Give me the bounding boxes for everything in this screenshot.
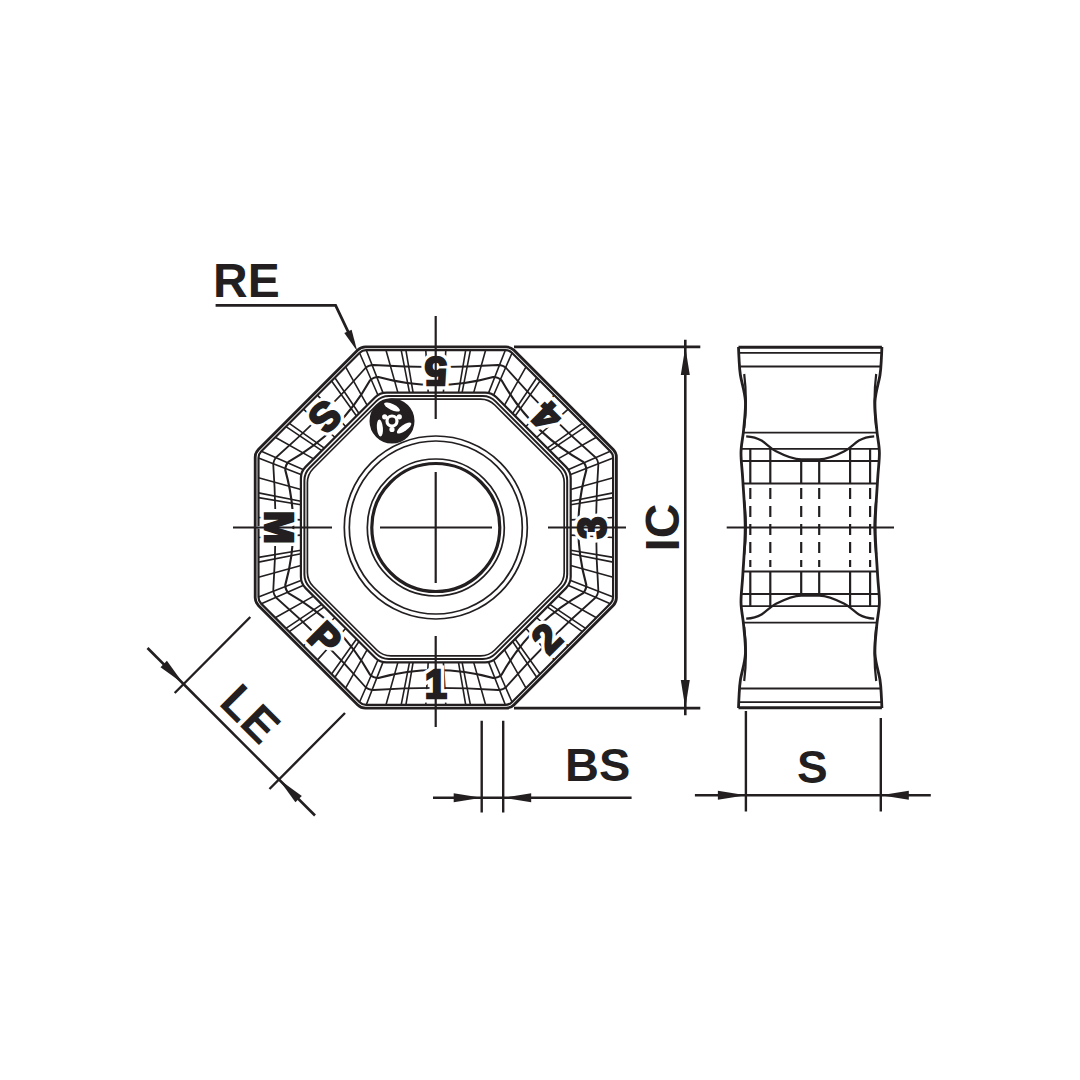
- svg-text:S: S: [797, 741, 828, 793]
- svg-text:RE: RE: [213, 254, 280, 307]
- svg-text:BS: BS: [565, 738, 630, 791]
- svg-text:IC: IC: [636, 504, 689, 552]
